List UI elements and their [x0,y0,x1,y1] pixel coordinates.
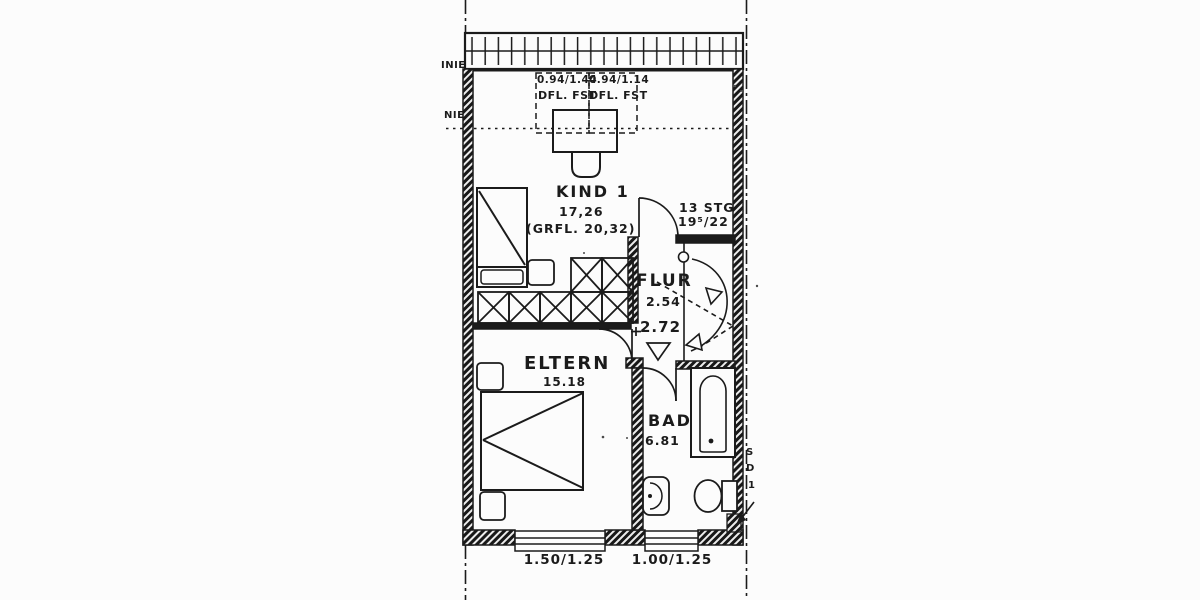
roof-window-type-1: DFL. FST [538,89,588,102]
exterior-walls [463,69,743,545]
bathtub [691,368,735,457]
room-grossarea-kind1: (GRFL. 20,32) [526,221,635,236]
roof-window-type-2: DFL. FST [589,89,637,102]
window-size-label-2: 1.00/1.25 [614,552,730,568]
stair-direction-arrow-1 [706,288,722,304]
bed-kind1 [477,188,527,287]
level-marker-triangle [647,343,670,360]
nightstand-eltern-2 [480,492,505,520]
roof-window-size-2: 0.94/1.14 [589,74,636,86]
washbasin [643,477,669,515]
door-kind1 [639,198,678,237]
floorplan-scan: 0.94/1.44 0.94/1.14 DFL. FST DFL. FST KI… [0,0,1200,600]
edge-label-left: NIE [444,110,464,121]
room-area-bad: 6.81 [645,433,680,448]
edge-label-right-bottom: 1 [748,480,755,491]
room-area-eltern: 15.18 [543,375,586,389]
roof-edge-band [465,33,743,69]
toilet [695,480,738,512]
edge-label-right-mid: D [746,463,755,474]
room-label-eltern: ELTERN [524,353,610,374]
door-bad [643,368,676,401]
stairs-rise-run-label: 19⁵/22 [678,214,729,229]
desk [553,110,617,152]
window-size-label-1: 1.50/1.25 [506,552,622,568]
room-label-flur: FLUR [636,271,693,291]
stairs-count-label: 13 STG [679,200,735,215]
edge-label-upper-left: INIE [441,60,466,71]
roof-window-size-1: 0.94/1.44 [537,74,588,86]
facade-window-1 [515,531,605,551]
nightstand-kind1 [528,260,554,285]
room-label-kind1: KIND 1 [556,182,630,201]
nightstand-eltern-1 [477,363,503,390]
stair-direction-arrow-2 [686,334,702,350]
ceiling-height-label: 2.72 [640,318,681,336]
bed-eltern [481,392,583,490]
room-area-kind1: 17,26 [559,204,604,219]
facade-window-2 [645,531,698,551]
chair [572,152,600,177]
room-area-flur: 2.54 [646,294,681,309]
edge-label-right-top: S [746,447,754,458]
room-label-bad: BAD [648,411,692,430]
